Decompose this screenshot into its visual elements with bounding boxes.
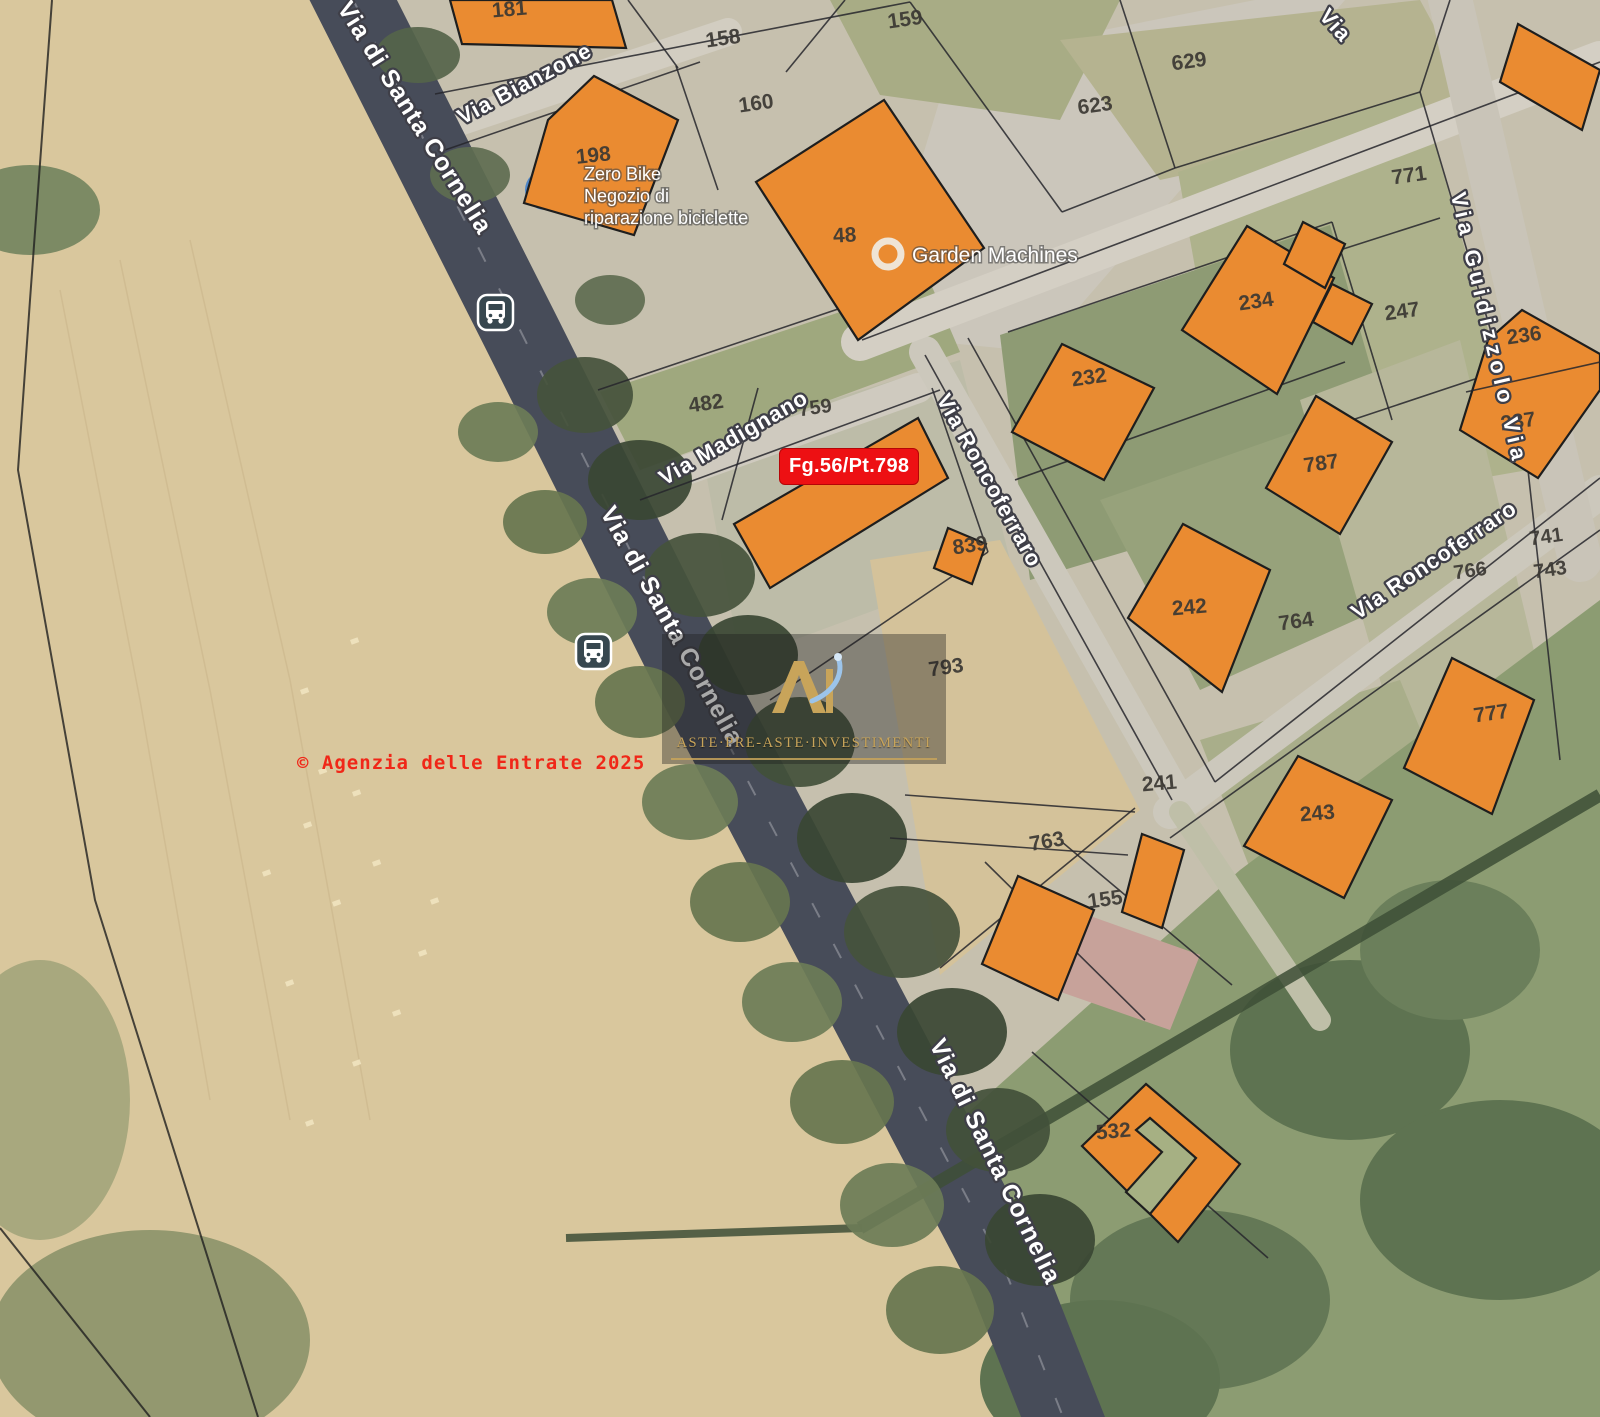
bus-stop-icon[interactable] (478, 295, 513, 330)
parcel-number: 839 (951, 532, 989, 560)
poi-label-zero-bike[interactable]: Zero Bike (584, 164, 661, 184)
bus-wheel (596, 657, 601, 662)
tree-canopy (745, 697, 855, 787)
parcel-number: 623 (1076, 92, 1114, 120)
tree-canopy (742, 962, 842, 1042)
parcel-number: 232 (1070, 364, 1108, 392)
tree-canopy (537, 357, 633, 433)
parcel-number: 771 (1390, 162, 1428, 190)
parcel-number: 160 (737, 90, 775, 118)
bus-light (499, 314, 503, 318)
poi-label-zero-bike[interactable]: riparazione biciclette (584, 208, 748, 228)
map-copyright: © Agenzia delle Entrate 2025 (297, 752, 645, 774)
tree-canopy (844, 886, 960, 978)
poi-label-zero-bike[interactable]: Negozio di (584, 186, 669, 206)
parcel-number: 234 (1237, 288, 1275, 316)
parcel-number: 629 (1170, 48, 1208, 76)
parcel-number: 247 (1383, 298, 1421, 326)
parcel-number: 181 (491, 0, 528, 23)
bus-light (597, 653, 601, 657)
tree-canopy (575, 275, 645, 325)
bus-light (489, 314, 493, 318)
parcel-number: 155 (1086, 886, 1124, 914)
parcel-number: 766 (1452, 558, 1488, 584)
vegetation-patch (1360, 880, 1540, 1020)
map-canvas[interactable]: 1811581591606236291984877123424723623223… (0, 0, 1600, 1417)
poi-label-garden-machines[interactable]: Garden Machines (912, 244, 1078, 267)
parcel-number: 743 (1532, 557, 1568, 583)
bus-window (587, 643, 601, 649)
parcel-number: 764 (1277, 608, 1315, 636)
bus-window (489, 304, 503, 310)
highlighted-parcel-tag: Fg.56/Pt.798 (779, 448, 919, 485)
tree-canopy (690, 862, 790, 942)
parcel-number: 48 (832, 223, 857, 247)
parcel-number: 532 (1095, 1119, 1132, 1145)
parcel-number: 236 (1505, 322, 1543, 350)
tree-canopy (595, 666, 685, 738)
bus-stop-icon[interactable] (576, 634, 611, 669)
parcel-number: 777 (1472, 700, 1510, 728)
tree-canopy (458, 402, 538, 462)
tree-canopy (886, 1266, 994, 1354)
parcel-number: 787 (1302, 450, 1340, 478)
bus-wheel (487, 318, 492, 323)
parcel-number: 158 (704, 25, 742, 53)
parcel-number: 793 (927, 654, 965, 682)
cadastral-satellite-map[interactable]: 1811581591606236291984877123424723623223… (0, 0, 1600, 1417)
parcel-number: 243 (1299, 801, 1336, 827)
parcel-number: 159 (886, 6, 924, 34)
bus-wheel (585, 657, 590, 662)
building-footprint (450, 0, 626, 48)
parcel-number: 741 (1528, 524, 1564, 550)
bus-wheel (498, 318, 503, 323)
bus-light (587, 653, 591, 657)
parcel-number: 242 (1171, 595, 1208, 621)
tree-canopy (840, 1163, 944, 1247)
parcel-number: 482 (687, 390, 725, 418)
tree-canopy (790, 1060, 894, 1144)
tree-canopy (642, 764, 738, 840)
tree-canopy (503, 490, 587, 554)
parcel-number: 241 (1141, 771, 1178, 797)
